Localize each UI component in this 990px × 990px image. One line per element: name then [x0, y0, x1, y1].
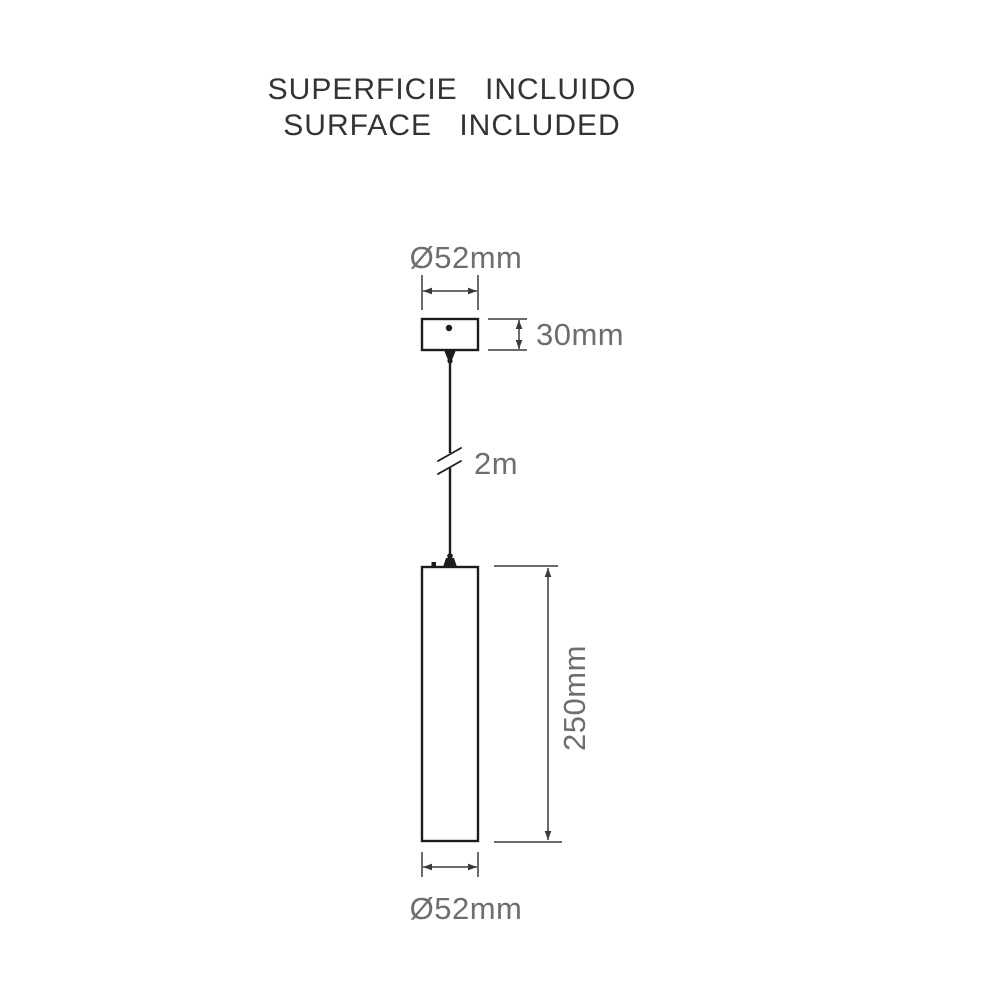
lamp-body: [422, 553, 478, 841]
diagram-canvas: SUPERFICIE INCLUIDO SURFACE INCLUDED Ø52…: [0, 0, 990, 990]
canopy-height-extension-lines: [488, 319, 527, 350]
suspension-cable: 2m: [438, 358, 518, 557]
body-diameter-extension-lines: [422, 852, 478, 877]
canopy-height-label: 30mm: [536, 317, 624, 352]
lamp-cable-gland: [443, 558, 457, 567]
canopy-diameter-extension-lines: [422, 275, 478, 310]
body-height-extension-lines: [494, 566, 562, 842]
lamp-cylinder: [422, 567, 478, 841]
canopy-diameter-label: Ø52mm: [410, 240, 523, 275]
canopy-screw-dot: [446, 325, 452, 331]
body-height-dimension: 250mm: [494, 566, 592, 842]
canopy-height-dimension: 30mm: [488, 317, 624, 352]
body-diameter-label: Ø52mm: [410, 891, 523, 926]
canopy-body: [422, 319, 478, 350]
ceiling-canopy: [422, 319, 478, 364]
cable-length-label: 2m: [474, 446, 518, 481]
lamp-gland-knob: [447, 553, 453, 559]
body-height-label: 250mm: [557, 645, 592, 751]
pendant-lamp-dimension-drawing: Ø52mm 30mm 2m: [0, 0, 990, 990]
body-diameter-dimension: Ø52mm: [410, 852, 523, 926]
canopy-diameter-dimension: Ø52mm: [410, 240, 523, 310]
